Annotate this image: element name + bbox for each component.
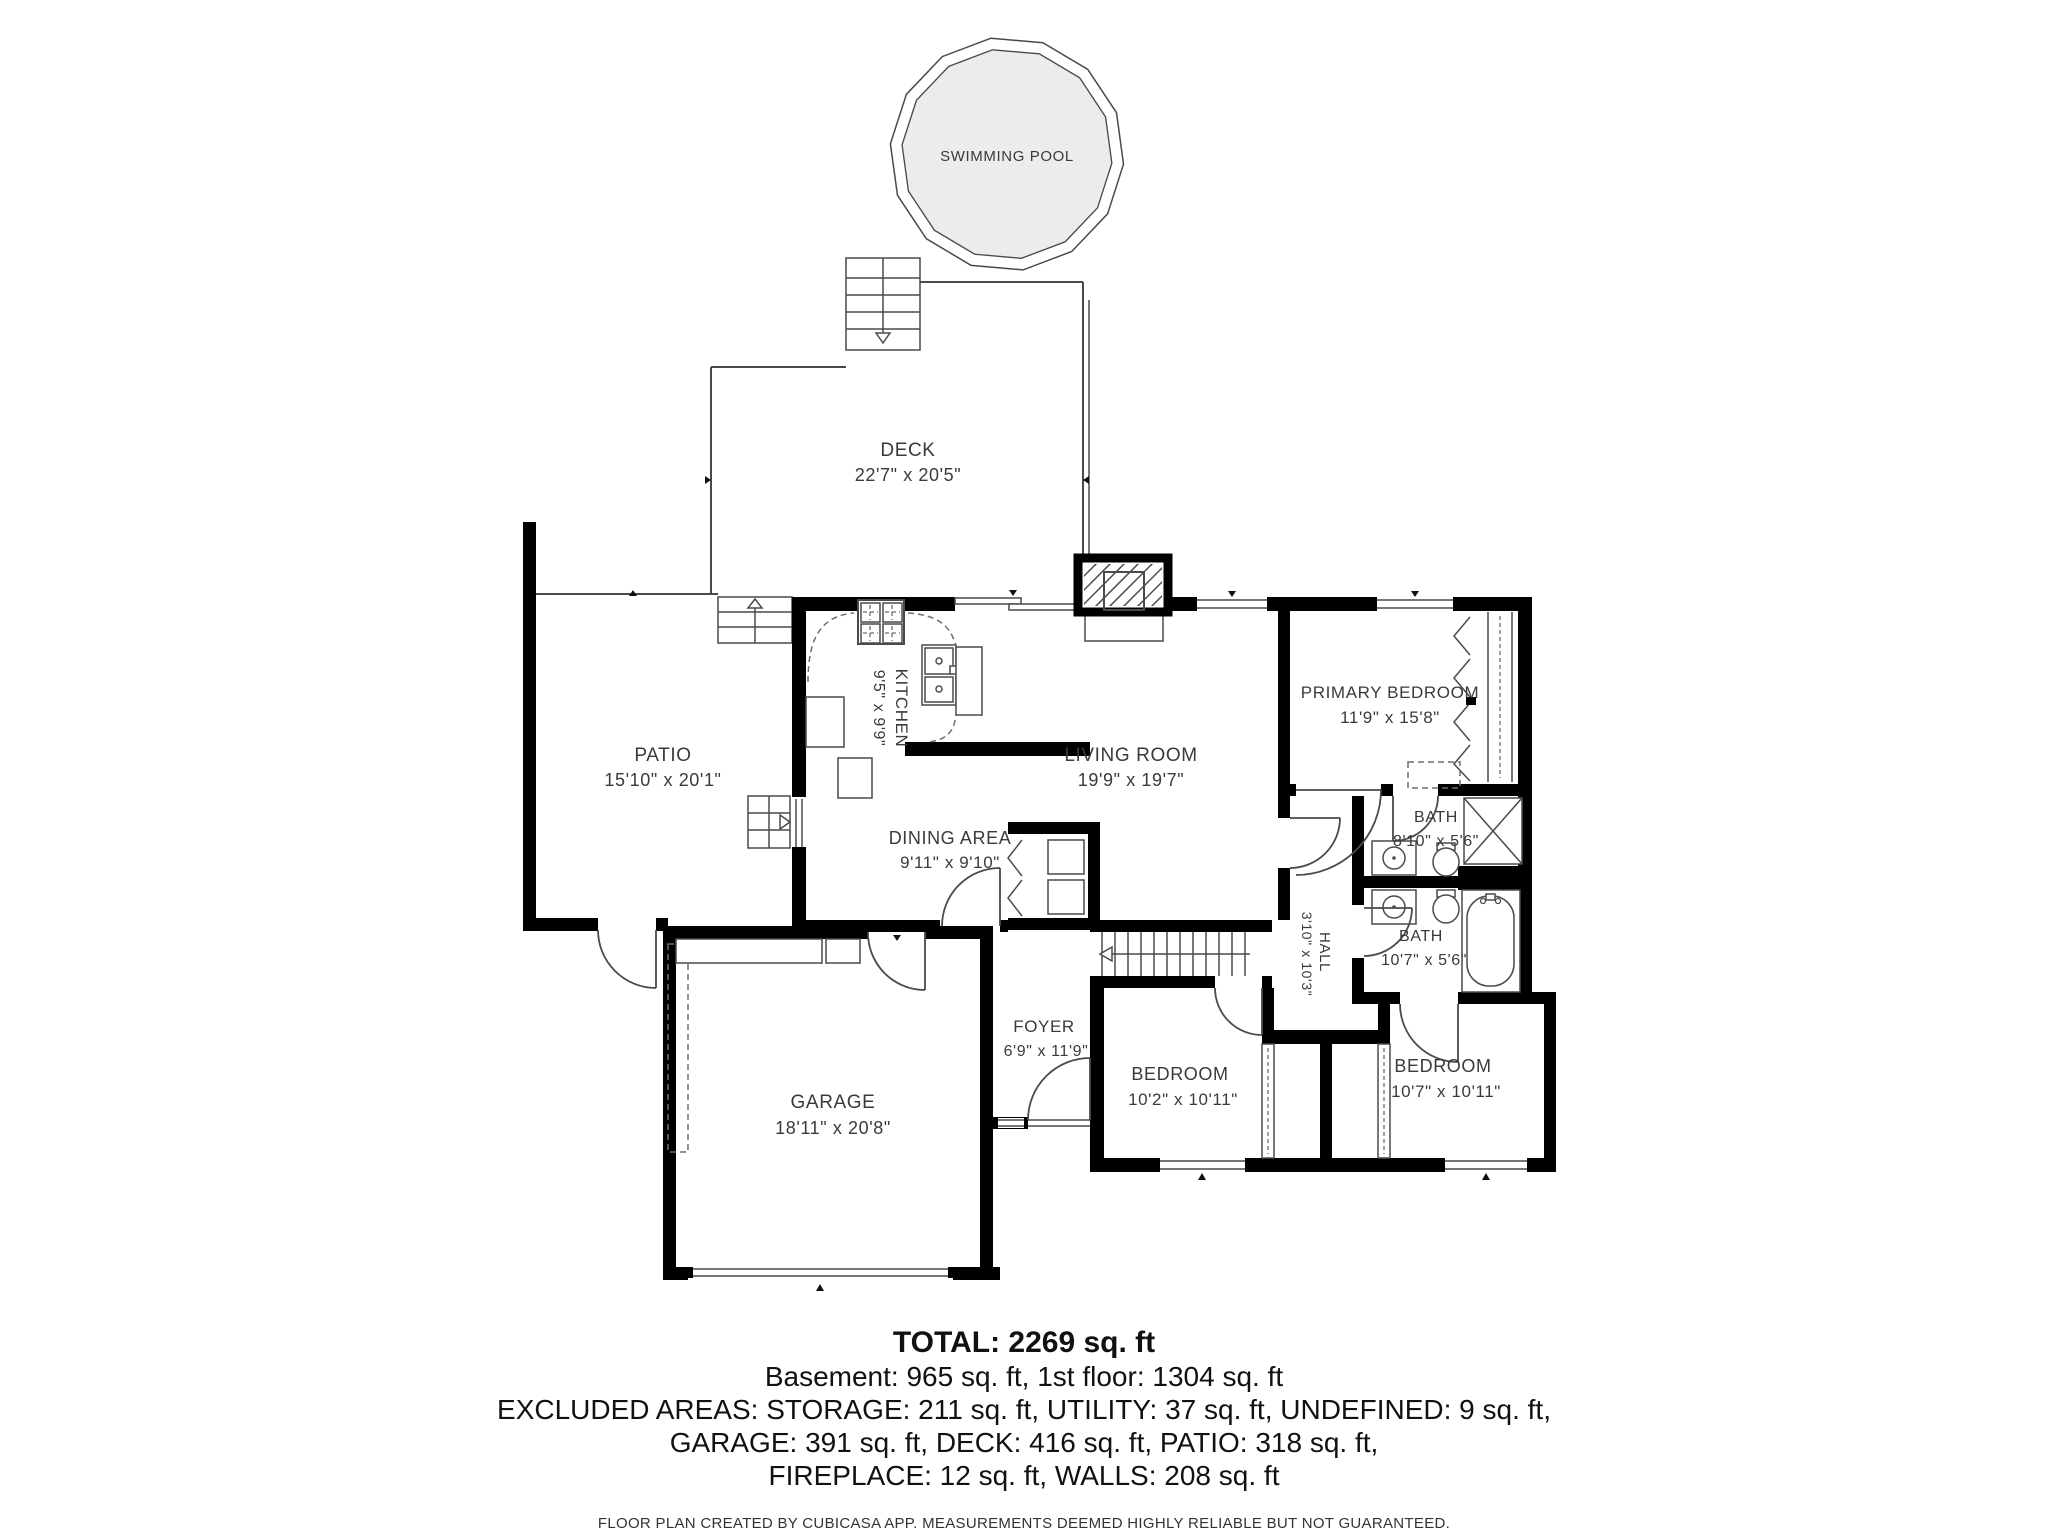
deck-patio-stairs [718,597,792,643]
pool-stairs [846,258,920,350]
patio-exterior-door [598,930,656,988]
label-patio-dims: 15'10" x 20'1" [604,770,721,790]
closet-sliding-door-left [1262,1044,1274,1158]
summary-line3: GARAGE: 391 sq. ft, DECK: 416 sq. ft, PA… [670,1427,1379,1458]
label-foyer-dims: 6'9" x 11'9" [1004,1043,1089,1060]
shower [1464,798,1522,864]
label-dining-area: DINING AREA [889,828,1012,848]
basement-stairs [1100,932,1250,976]
footer-disclaimer: FLOOR PLAN CREATED BY CUBICASA APP. MEAS… [598,1515,1450,1532]
summary-line2: EXCLUDED AREAS: STORAGE: 211 sq. ft, UTI… [497,1394,1551,1425]
label-kitchen: KITCHEN [892,669,911,748]
bath-lower-vanity [1372,890,1416,924]
dishwasher [806,697,844,747]
garage-door [688,1267,953,1278]
label-bath-upper-dims: 8'10" x 5'6" [1393,833,1479,850]
sliding-door [955,598,1075,610]
door-hall [1290,818,1340,868]
garage-workbench [676,939,822,963]
bathtub [1462,890,1520,992]
label-garage-dims: 18'11" x 20'8" [775,1118,891,1138]
label-kitchen-dims: 9'5" x 9'9" [870,670,887,747]
summary-block: TOTAL: 2269 sq. ft Basement: 965 sq. ft,… [497,1326,1551,1532]
label-bedroom-left: BEDROOM [1131,1064,1228,1084]
label-living-room-dims: 19'9" x 19'7" [1078,770,1185,790]
door-bedroom-right [1400,1004,1458,1062]
closet-sliding-door-right [1378,1044,1390,1158]
summary-line1: Basement: 965 sq. ft, 1st floor: 1304 sq… [765,1361,1284,1392]
door-bedroom-left [1215,988,1262,1035]
refrigerator [956,647,982,715]
label-garage: GARAGE [791,1092,876,1113]
label-primary-bedroom: PRIMARY BEDROOM [1301,683,1479,702]
door-garage-entry [868,932,925,990]
summary-line4: FIREPLACE: 12 sq. ft, WALLS: 208 sq. ft [769,1460,1280,1491]
label-bedroom-left-dims: 10'2" x 10'11" [1128,1090,1238,1109]
label-bath-lower: BATH [1399,928,1443,945]
stove [858,600,904,644]
kitchen-island [838,758,872,798]
label-dining-area-dims: 9'11" x 9'10" [900,853,1000,872]
patio-stairs [748,796,790,848]
floor-plan-page: SWIMMING POOL DECK 22'7" x 20'5" PATIO 1… [0,0,2048,1536]
fireplace [1040,550,1208,641]
label-patio: PATIO [634,745,691,766]
label-swimming-pool: SWIMMING POOL [940,148,1074,165]
label-deck-dims: 22'7" x 20'5" [855,465,962,485]
label-living-room: LIVING ROOM [1064,745,1197,766]
label-primary-bedroom-dims: 11'9" x 15'8" [1340,708,1440,727]
label-bedroom-right-dims: 10'7" x 10'11" [1391,1082,1501,1101]
bath-lower-toilet [1433,890,1459,923]
water-heater [826,939,860,963]
label-deck: DECK [880,440,935,461]
door-dining [942,868,1000,926]
label-foyer: FOYER [1013,1017,1075,1036]
label-bath-upper: BATH [1414,809,1458,826]
foyer-closet [1008,840,1084,916]
summary-total: TOTAL: 2269 sq. ft [893,1326,1155,1359]
floor-plan-svg: SWIMMING POOL DECK 22'7" x 20'5" PATIO 1… [0,0,2048,1536]
label-bedroom-right: BEDROOM [1394,1056,1491,1076]
door-front [1028,1058,1090,1120]
label-bath-lower-dims: 10'7" x 5'6" [1381,952,1467,969]
label-hall-dims: 3'10" x 10'3" [1299,912,1315,997]
label-hall: HALL [1316,932,1333,972]
